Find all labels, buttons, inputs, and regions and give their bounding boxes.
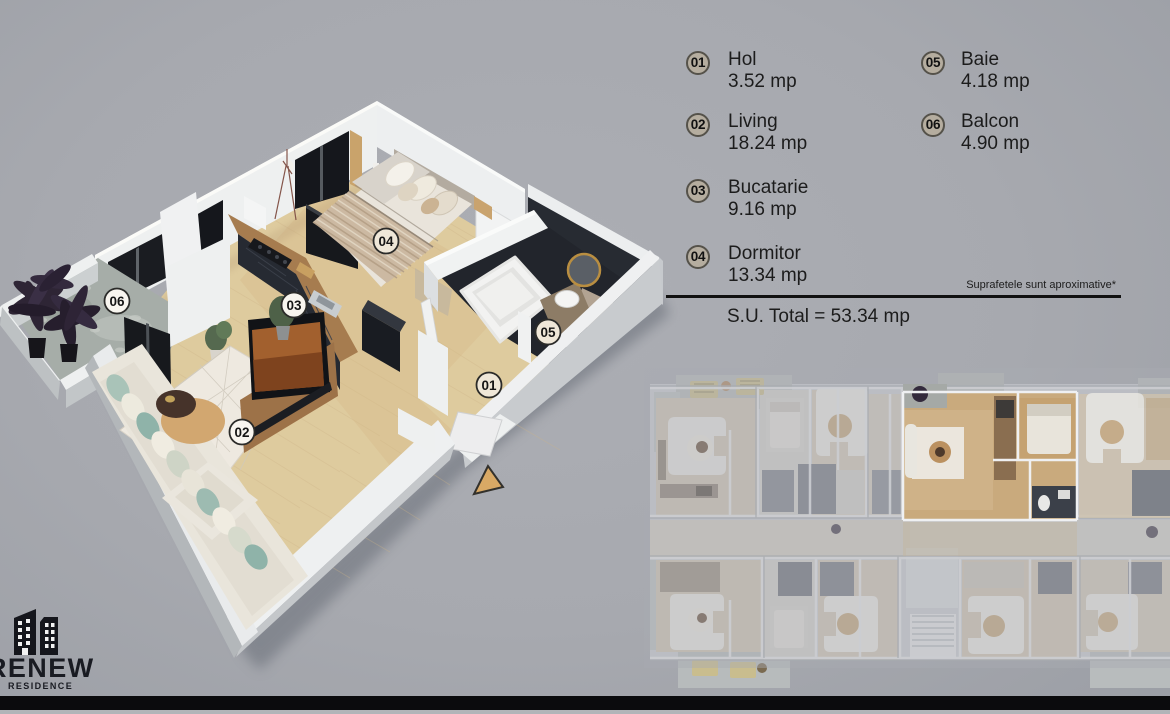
svg-text:03: 03 [286,298,302,313]
svg-text:04: 04 [378,234,394,249]
svg-text:RESIDENCE: RESIDENCE [8,681,73,691]
svg-text:05: 05 [540,325,556,340]
svg-text:01: 01 [481,378,497,393]
svg-text:06: 06 [109,294,125,309]
svg-text:RENEW: RENEW [0,653,95,683]
svg-text:02: 02 [234,425,249,440]
